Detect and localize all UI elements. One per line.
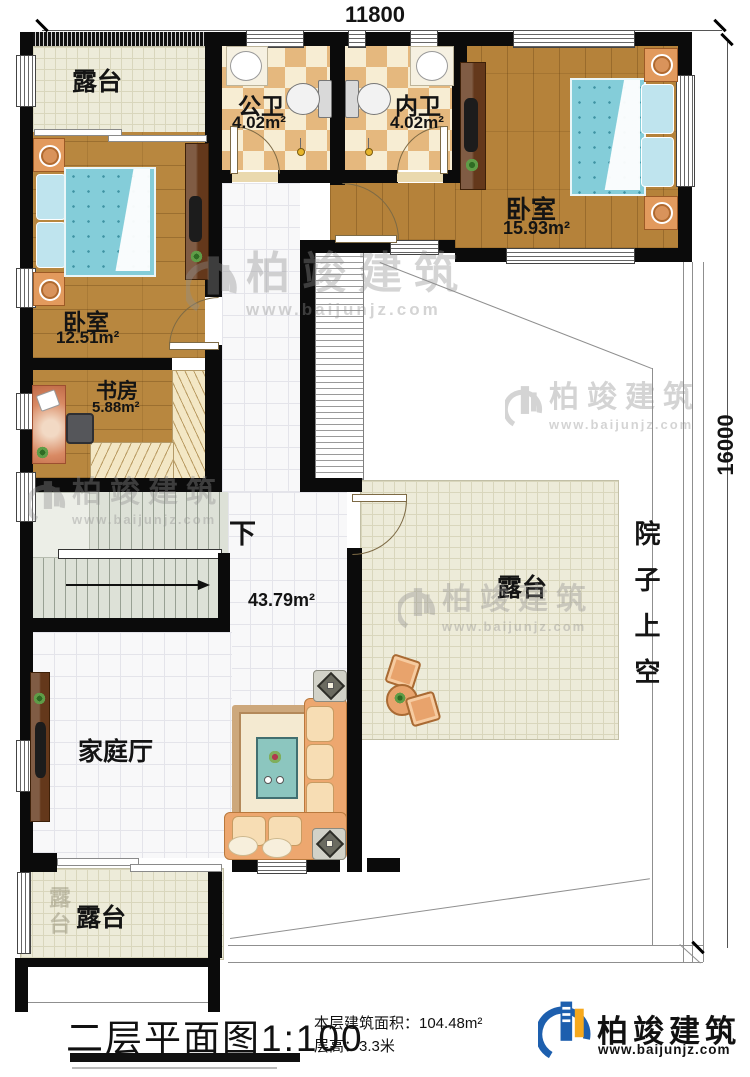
hall-area-label: 43.79m²: [248, 590, 315, 611]
courtyard-bottom-a: [228, 945, 703, 946]
watermark-logo-icon: [398, 585, 436, 638]
study-computer: [66, 413, 94, 444]
top-dimension-line: [42, 30, 722, 31]
bedroom-left-area: 12.51m²: [56, 328, 119, 348]
bottom-slider-a: [57, 858, 139, 866]
bedroom-right-area: 15.93m²: [503, 218, 570, 239]
ensuite-area: 4.02m²: [390, 113, 444, 133]
hall-lamp-b-dot: [326, 840, 333, 847]
lower-balcony-line: [28, 1002, 208, 1003]
bath-south-wall-b: [278, 170, 398, 183]
title-underline-thin: [72, 1067, 277, 1069]
study-wardrobe-bottom: [90, 442, 174, 480]
terrace-tl-window: [16, 55, 36, 107]
title-underline-bar: [70, 1053, 300, 1062]
terrace-tl-label: 露台: [72, 62, 122, 98]
bedroom-right-bed-fold: [600, 80, 640, 190]
coffee-cup-a: [264, 776, 272, 784]
ensuite-toilet: [357, 83, 391, 115]
terrace-bottom-label: 露台: [76, 898, 126, 934]
coffee-cup-b: [276, 776, 284, 784]
watermark-2: 柏竣建筑 www.baijunjz.com: [505, 383, 701, 436]
study-wardrobe-right: [172, 370, 207, 480]
bedroom-left-monitor: [189, 196, 202, 242]
bedroom-right-tv: [464, 98, 478, 152]
watermark-logo-icon: [505, 383, 543, 436]
watermark-brand: 柏竣建筑: [549, 383, 701, 413]
bedroom-right-south-window: [506, 248, 635, 264]
bedroom-left-nightstand-a: [33, 138, 65, 172]
lower-balcony-band: [15, 958, 220, 967]
bath-divider-wall: [330, 46, 345, 185]
terrace-top-railing: [20, 32, 205, 46]
hall-south-wall-a: [232, 858, 257, 872]
stair-direction-line: [66, 584, 200, 586]
bedroom-left-pillow-a: [36, 174, 66, 220]
courtyard-bottom-b: [228, 962, 703, 963]
stair-direction-arrow: [198, 580, 210, 590]
bedroom-right-top-window: [513, 30, 635, 48]
watermark-brand: 柏竣建筑: [442, 585, 594, 615]
public-bath-toilet: [286, 83, 320, 115]
watermark-brand: 柏竣建筑: [246, 252, 470, 296]
watermark-4: 柏竣建筑 www.baijunjz.com: [398, 585, 594, 638]
stair-down-label: 下: [229, 512, 256, 551]
hall-plant: [33, 692, 46, 705]
stair-strip-south-wall: [300, 478, 362, 492]
terrace-slider-b: [108, 135, 207, 142]
top-dimension: 11800: [345, 2, 405, 28]
watermark-site: www.baijunjz.com: [442, 619, 594, 634]
hall-east-wall: [347, 548, 362, 872]
bedroom-right-plant: [465, 158, 479, 172]
coffee-table-flower: [268, 750, 282, 764]
hall-tv: [35, 722, 46, 778]
stair-railing: [58, 549, 222, 559]
watermark-1: 柏竣建筑 www.baijunjz.com: [186, 252, 470, 323]
hall-coffee-table: [256, 737, 298, 799]
hall-label: 家庭厅: [78, 732, 153, 768]
watermark-site: www.baijunjz.com: [549, 417, 701, 432]
watermark-site: www.baijunjz.com: [246, 300, 470, 320]
watermark-site: www.baijunjz.com: [72, 512, 224, 527]
courtyard-label: 院子上空: [628, 520, 665, 760]
watermark-logo-icon: [28, 478, 66, 531]
bedroom-left-nightstand-b: [33, 272, 65, 306]
bedroom-right-east-window: [676, 75, 695, 187]
watermark-3: 柏竣建筑 www.baijunjz.com: [28, 478, 224, 531]
bedroom-right-nightstand-b: [644, 196, 678, 230]
courtyard-edge-c: [703, 262, 704, 962]
right-dimension: 16000: [713, 405, 739, 485]
public-bath-toilet-tank: [318, 80, 332, 118]
bedroom-study-wall: [32, 358, 172, 370]
public-bath-handle: [297, 148, 305, 156]
bedroom-right-south-wall-b: [633, 248, 692, 262]
courtyard-diagonal-b: [230, 878, 650, 939]
brand-site: www.baijunjz.com: [598, 1042, 731, 1057]
ensuite-handle: [365, 148, 373, 156]
terrace-watermark: 露台: [42, 886, 74, 938]
courtyard-edge-b: [692, 262, 693, 962]
lower-balcony-post-right: [208, 958, 220, 1012]
right-dimension-line: [727, 42, 728, 948]
ensuite-window-a: [348, 30, 366, 48]
study-area: 5.88m²: [92, 399, 140, 416]
bedroom-right-pillow-a: [641, 84, 674, 134]
stair-east-post: [218, 553, 230, 632]
hall-south-window: [257, 858, 307, 874]
sofa-pillow-a: [228, 836, 258, 856]
terrace-bottom-wall-left: [20, 853, 57, 872]
lower-balcony-post-left: [15, 958, 28, 1012]
hallway-west-wall-lower: [205, 345, 222, 492]
floor-plan: 11800 16000 露台 公卫 4.02m² 内卫 4.02m² 卧室 15…: [0, 0, 750, 1077]
terrace-table-plant: [394, 692, 406, 704]
bedroom-right-pillow-b: [641, 137, 674, 187]
hall-south-wall-c: [367, 858, 400, 872]
floor-height-text: 层高：3.3米: [314, 1035, 395, 1056]
bottom-slider-b: [130, 864, 222, 872]
terrace-bottom-wall-right: [208, 868, 222, 958]
floor-area-text: 本层建筑面积：104.48m²: [314, 1012, 482, 1033]
public-bath-area: 4.02m²: [232, 113, 286, 133]
brand-logo-icon: [538, 998, 592, 1064]
ensuite-sink: [416, 51, 448, 81]
bedroom-right-nightstand-a: [644, 48, 678, 82]
terrace-bottom-railing: [17, 872, 31, 954]
hall-south-wall-b: [305, 858, 340, 872]
study-plant: [36, 446, 49, 459]
sofa-pillow-b: [262, 838, 292, 858]
sofa-cushion-b: [306, 744, 334, 780]
hall-lamp-a-dot: [327, 682, 334, 689]
sofa-cushion-a: [306, 706, 334, 742]
bedroom-left-pillow-b: [36, 222, 66, 268]
public-bath-sink: [230, 51, 262, 81]
watermark-brand: 柏竣建筑: [72, 478, 224, 508]
bedroom-left-bed-fold: [110, 169, 150, 271]
stair-south-wall: [20, 618, 230, 632]
courtyard-edge-a: [683, 262, 684, 962]
hallway-floor: [222, 183, 300, 492]
watermark-logo-icon: [186, 252, 238, 323]
